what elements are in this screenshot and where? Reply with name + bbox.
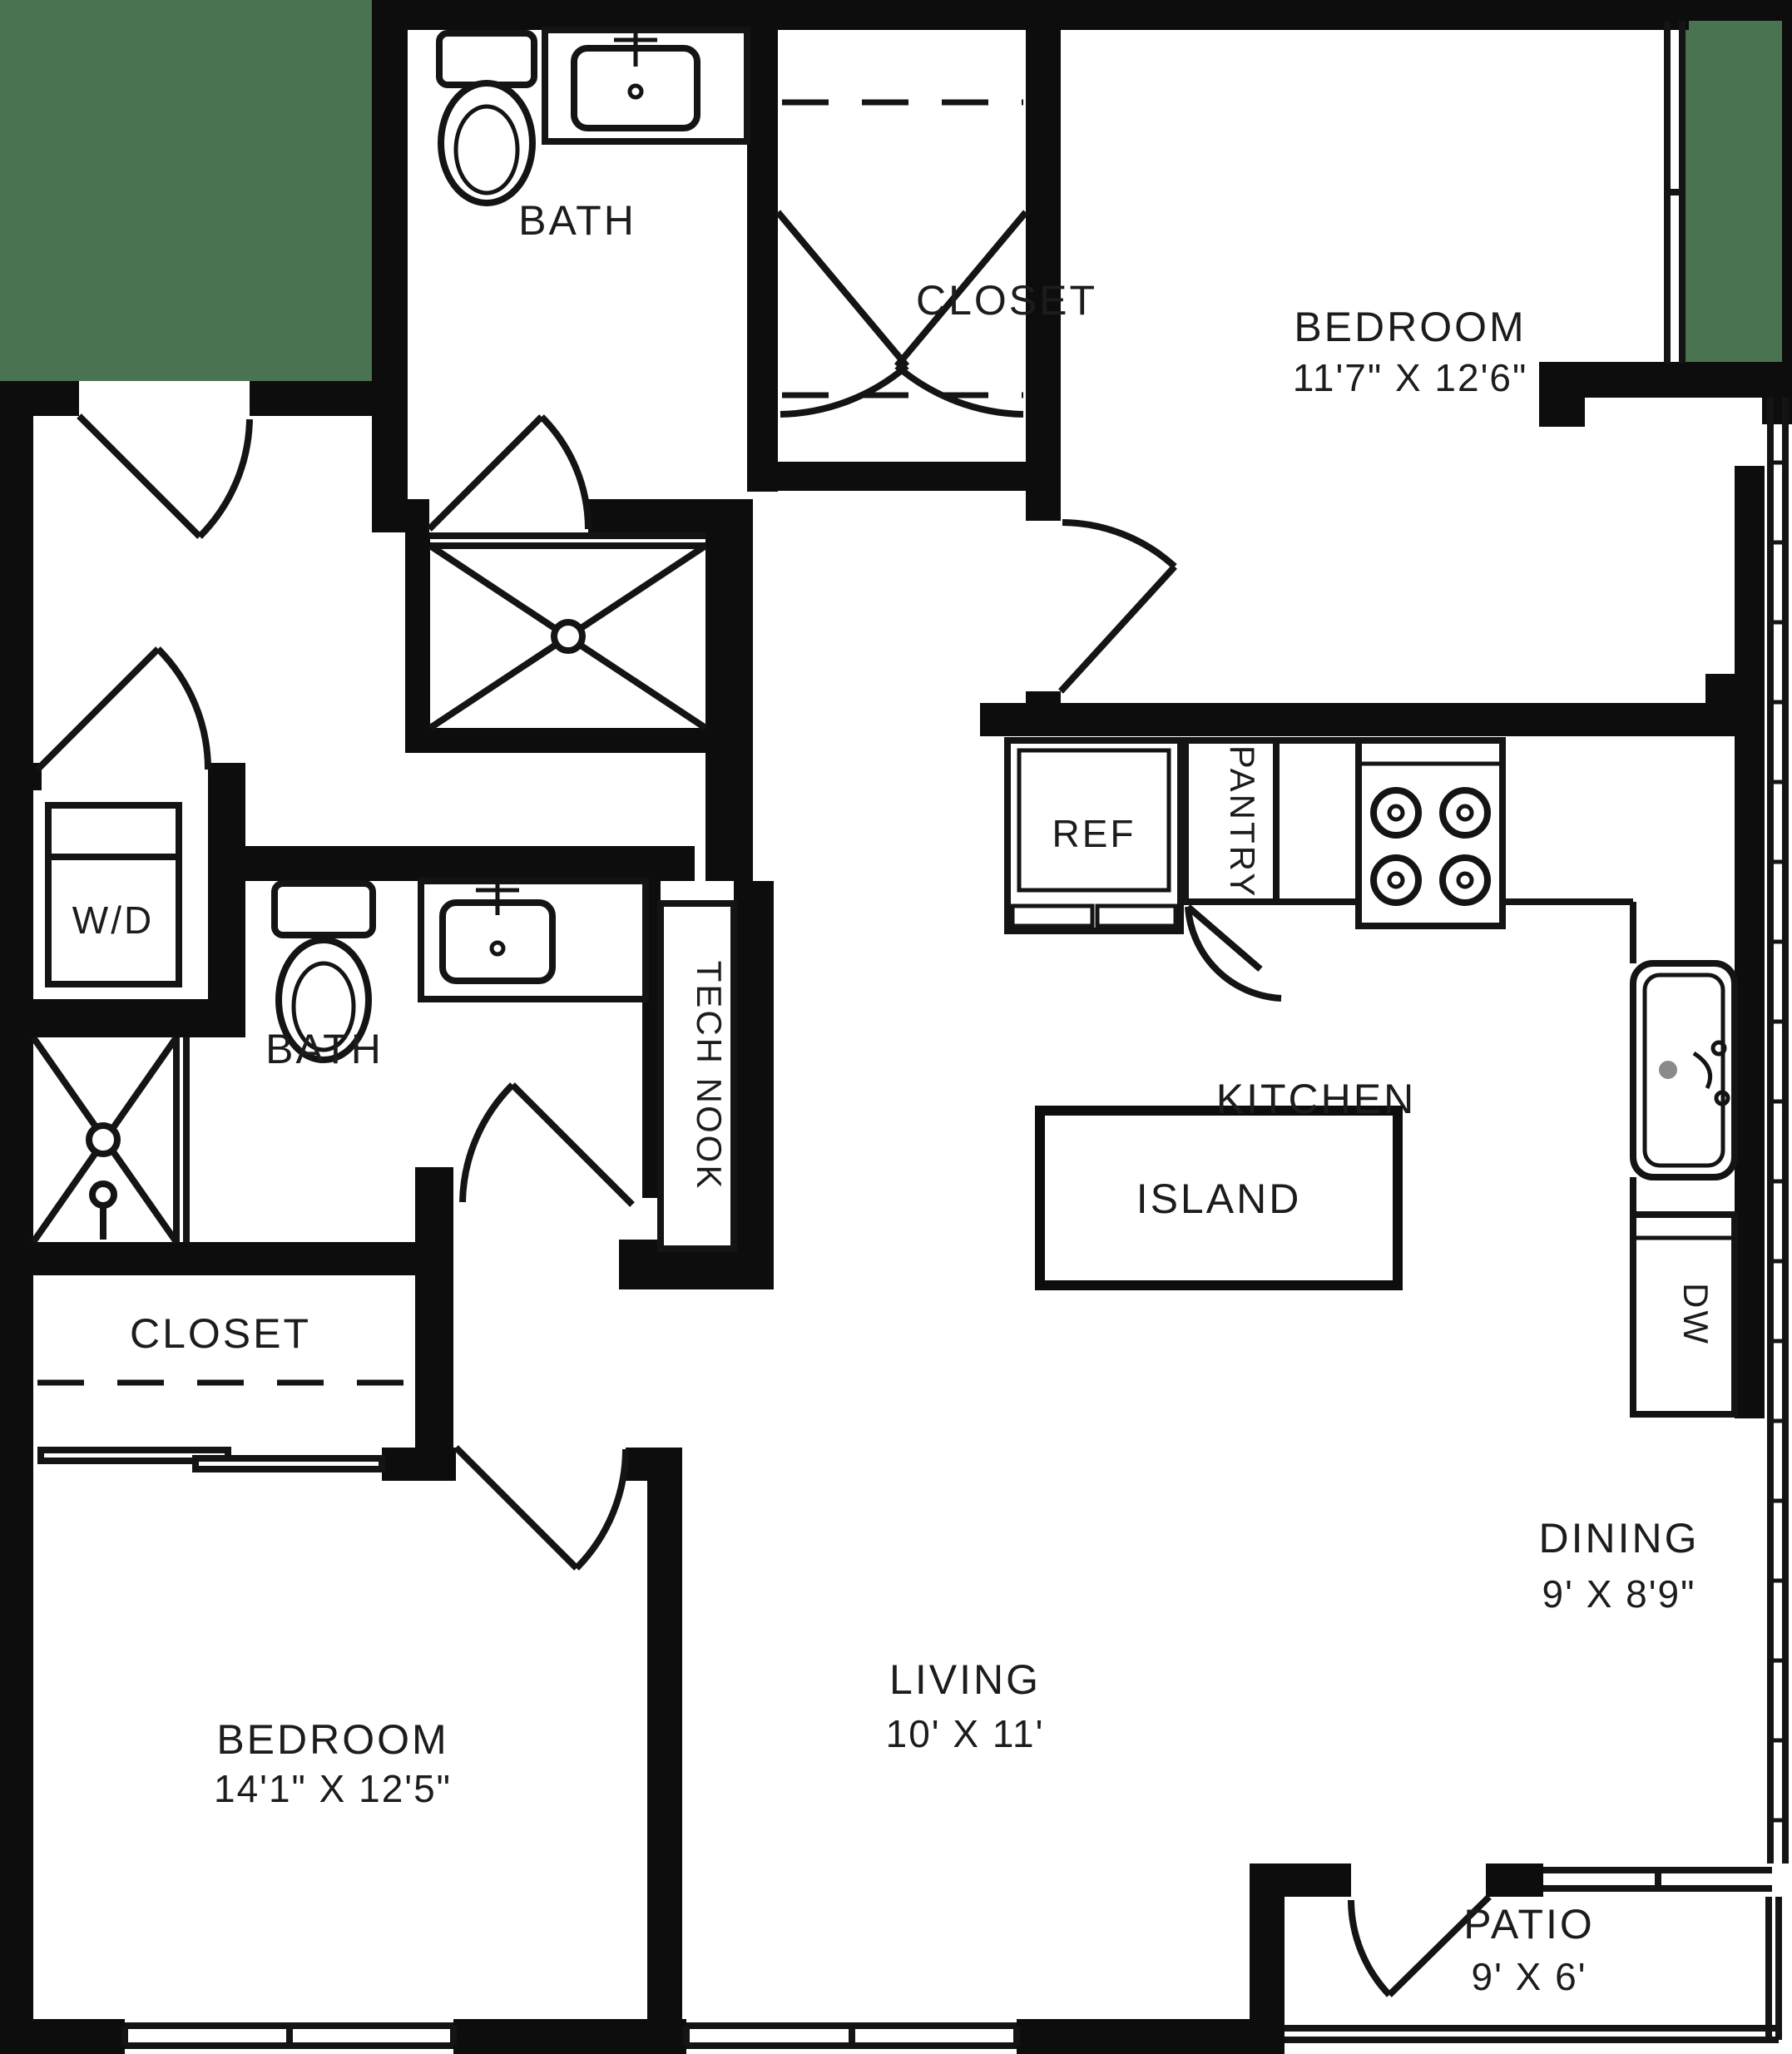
washer-dryer-label: W/D	[72, 898, 154, 942]
patio-label: PATIO	[1463, 1901, 1595, 1948]
dishwasher-label: DW	[1676, 1283, 1715, 1346]
bedroom-right-dims: 11'7" X 12'6"	[1293, 356, 1528, 399]
bedroom-left-door	[456, 1448, 626, 1568]
washer-dryer	[48, 805, 179, 984]
shower-drain	[554, 622, 582, 651]
bottom-window-living	[686, 2026, 1017, 2046]
closet-top-rods	[782, 102, 1023, 395]
toilet-tank	[275, 883, 373, 935]
shower-head	[92, 1184, 114, 1205]
sink-drain	[1659, 1061, 1677, 1079]
dining-label: DINING	[1539, 1515, 1700, 1562]
bath-mid-door	[463, 1085, 632, 1205]
bedroom-left-label: BEDROOM	[216, 1716, 448, 1763]
closet-mid-label: CLOSET	[130, 1310, 311, 1357]
floor-plan: BATH CLOSET BEDROOM 11'7" X 12'6" W/D BA…	[0, 0, 1792, 2054]
bath-top-fixtures	[439, 30, 747, 203]
kitchen-sink	[1633, 963, 1735, 1177]
bedroom-right-door	[1061, 522, 1175, 691]
wd-closet-door	[37, 649, 208, 770]
shower-drain	[89, 1126, 117, 1154]
right-window-wall	[1770, 398, 1785, 1863]
bedroom-right-label: BEDROOM	[1294, 304, 1526, 350]
bedroom-right-window	[1667, 21, 1682, 364]
sliding-door-panel[interactable]	[196, 1458, 382, 1469]
bath-top-door	[429, 417, 588, 529]
closet-top-label: CLOSET	[916, 277, 1097, 324]
kitchen-label: KITCHEN	[1216, 1076, 1416, 1122]
patio-dims: 9' X 6'	[1472, 1955, 1587, 1998]
island-label: ISLAND	[1136, 1175, 1302, 1222]
dining-dims: 9' X 8'9"	[1542, 1572, 1696, 1616]
entry-door	[79, 416, 250, 537]
bedroom-left-dims: 14'1" X 12'5"	[214, 1767, 452, 1810]
shower-top	[430, 536, 705, 728]
exterior-green-top-right	[1685, 21, 1782, 362]
cabinet	[1276, 740, 1359, 902]
exterior-green-top-left	[0, 0, 372, 381]
refrigerator-label: REF	[1052, 812, 1136, 855]
patio-window	[1543, 1870, 1772, 1888]
tech-nook-label: TECH NOOK	[690, 961, 729, 1191]
shower-mid	[33, 1037, 186, 1242]
bath-top-label: BATH	[518, 197, 636, 244]
stove	[1359, 740, 1502, 926]
bottom-window-bedroom	[125, 2026, 453, 2046]
toilet-tank	[439, 33, 534, 85]
living-dims: 10' X 11'	[886, 1712, 1045, 1755]
bath-mid-label: BATH	[265, 1026, 384, 1072]
pantry-door	[1188, 907, 1281, 998]
pantry-label: PANTRY	[1223, 745, 1262, 898]
living-label: LIVING	[889, 1656, 1041, 1703]
closet-mid-detail	[37, 1383, 412, 1469]
